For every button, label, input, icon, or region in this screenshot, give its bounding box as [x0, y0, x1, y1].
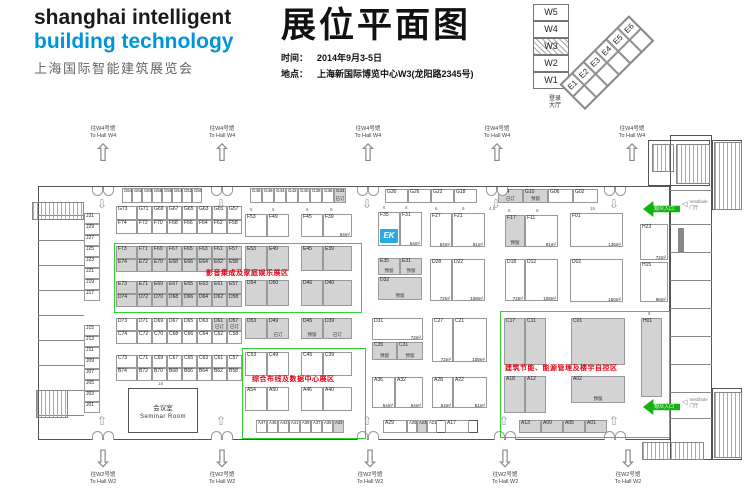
booth-C57: C57	[227, 355, 242, 368]
booth-D50: D50	[267, 280, 289, 306]
booth-C74: C74	[116, 331, 137, 344]
booth-G02: G02	[573, 189, 598, 203]
booth-id: E61	[214, 281, 223, 287]
booth-A32: A3254m²	[395, 377, 423, 408]
down-arrow-icon: ⇩	[216, 197, 226, 211]
booth-A37: A37	[311, 420, 322, 433]
booth-C39: C39	[323, 352, 352, 376]
booth-G65: G65	[182, 206, 197, 220]
booth-id: G34	[336, 188, 345, 193]
wall-line	[670, 418, 712, 419]
booth-id: E74	[118, 259, 127, 265]
booth-C63: C63	[197, 355, 212, 368]
booth-C21: C21108m²	[453, 318, 487, 362]
booth-area: 72m²	[411, 335, 421, 340]
booth-id: H01	[643, 318, 652, 324]
hall-direction-top: 往W4号馆To Hall W4⇧	[467, 126, 527, 166]
booth-id: C58	[229, 331, 238, 337]
booth-area: 160m²	[608, 297, 621, 302]
booth-G50: G50	[192, 188, 202, 203]
door-arc	[211, 431, 222, 440]
booth-id: A29	[385, 420, 394, 426]
booth-F74: F74	[116, 220, 137, 234]
booth-id: J15	[86, 325, 94, 331]
booth-D71: D71	[137, 318, 152, 331]
booth-C45: C45	[301, 352, 323, 376]
booth-F71: F71	[137, 246, 152, 259]
booth-D32: D32预留	[378, 277, 422, 300]
booth-A28: A2854m²	[432, 377, 453, 408]
booth-id: G57	[229, 206, 238, 212]
booth-F01: F01135m²	[570, 213, 623, 247]
booth-id: G62	[134, 188, 142, 193]
booth-B74: B74	[116, 368, 137, 381]
wall-line	[670, 336, 712, 337]
booth-D73: D73	[116, 318, 137, 331]
booth-area: 54m²	[441, 403, 451, 408]
wall-line	[670, 280, 712, 281]
booth-area: 108m²	[470, 296, 483, 301]
booth-E35: E35预留	[378, 258, 400, 275]
direction-cn: 往W2号馆	[598, 472, 658, 479]
down-arrow-icon: ⇩	[598, 446, 658, 472]
booth-F35: F35EK	[378, 212, 400, 246]
booth-id: C21	[455, 318, 464, 324]
booth-id: C31	[399, 342, 408, 348]
booth-id: F69	[154, 246, 163, 252]
booth-id: A47	[258, 420, 265, 425]
vestibule-label: ◁Vestibule门厅	[682, 397, 718, 408]
dimension-label: 8	[648, 311, 651, 316]
booth-id: G64	[124, 188, 132, 193]
booth-id: A54	[247, 387, 256, 393]
hall-direction-bottom: ⇩往W2号馆To Hall W2	[475, 446, 535, 486]
booth-id: G02	[575, 189, 584, 195]
booth-id: A46	[303, 387, 312, 393]
direction-en: To Hall W2	[475, 479, 535, 486]
booth-F17: F17预留	[505, 215, 525, 247]
booth-id: F21	[454, 213, 463, 219]
booth-C61: C61	[212, 355, 227, 368]
booth-status: 预留	[373, 353, 396, 359]
booth-id: E35	[380, 258, 389, 264]
booth-B64: B64	[197, 368, 212, 381]
booth-area: 81m²	[546, 242, 556, 247]
hall-direction-bottom: ⇩往W2号馆To Hall W2	[192, 446, 252, 486]
booth-F72: F72	[137, 220, 152, 234]
booth-status: 已订	[268, 332, 288, 338]
booth-E65: E65	[182, 281, 197, 294]
booth-id: F49	[269, 214, 278, 220]
direction-cn: 往W4号馆	[73, 126, 133, 133]
vestibule-text: Vestibule门厅	[689, 397, 707, 408]
dimension-label: 6	[508, 208, 511, 213]
booth-id: E57	[229, 281, 238, 287]
hall-direction-top: 往W4号馆To Hall W4⇧	[338, 126, 398, 166]
booth-area: 96m²	[656, 297, 666, 302]
booth-A22: A2281m²	[453, 377, 487, 408]
booth-J15: J15	[84, 325, 100, 336]
booth-id: F27	[432, 213, 441, 219]
booth-id: B62	[214, 368, 223, 374]
booth-id: A25	[409, 420, 416, 425]
booth-id: J07	[86, 369, 94, 375]
booth-G64: G64	[122, 188, 132, 203]
booth-G44: G44	[274, 188, 286, 203]
wall-line	[38, 340, 84, 341]
booth-id: A17	[447, 420, 456, 426]
booth-id: A36	[374, 377, 383, 383]
booth-id: C73	[118, 355, 127, 361]
hall-direction-top: 往W4号馆To Hall W4⇧	[602, 126, 662, 166]
booth-id: D39	[325, 318, 334, 324]
down-arrow-icon: ⇩	[73, 446, 133, 472]
booth-G38: G38	[310, 188, 322, 203]
booth-D64: D64	[197, 294, 212, 307]
booth-C71: C71	[137, 355, 152, 368]
exhibitor-logo: EK	[380, 229, 398, 243]
booth-D74: D74	[116, 294, 137, 307]
booth-id: J31	[86, 213, 94, 219]
booth-id: G06	[550, 189, 559, 195]
vestibule-label: ◁Vestibule门厅	[682, 199, 718, 210]
booth-A09: A09	[541, 420, 563, 433]
booth-id: F68	[169, 220, 178, 226]
hatched-area	[714, 142, 742, 210]
booth-F73: F73	[116, 246, 137, 259]
booth-B58: B58	[227, 368, 242, 381]
booth-id: J03	[86, 391, 94, 397]
booth-D39: D39已订	[323, 318, 352, 339]
booth-id: C57	[229, 355, 238, 361]
booth-status: 已订	[335, 196, 345, 202]
booth-id: F74	[118, 220, 127, 226]
booth-id: G44	[276, 188, 285, 193]
booth-J17: J17	[84, 290, 100, 301]
booth-A01: A01	[585, 420, 607, 433]
booth-id: J17	[86, 290, 94, 296]
booth-id: G10	[525, 189, 534, 195]
booth-id: G69	[154, 206, 163, 212]
dimension-label: 6	[272, 207, 275, 212]
booth-id: B64	[199, 368, 208, 374]
booth-F27: F2754m²	[430, 213, 452, 247]
booth-A36: A3654m²	[372, 377, 395, 408]
wall-line	[670, 364, 712, 365]
booth-A39: A39	[300, 420, 311, 433]
booth-id: F58	[229, 220, 238, 226]
entrance-label: 观众入口	[654, 404, 674, 410]
booth-id: F57	[229, 246, 238, 252]
booth-id: A13	[521, 420, 530, 426]
booth-id: F71	[139, 246, 148, 252]
booth-G71: G71	[137, 206, 152, 220]
left-triangle-icon: ◁	[682, 398, 687, 406]
booth-id: E71	[139, 281, 148, 287]
up-arrow-icon: ⇧	[467, 140, 527, 166]
booth-F69: F69	[152, 246, 167, 259]
booth-id: A32	[397, 377, 406, 383]
booth-status: 预留	[398, 353, 422, 359]
booth-id: G38	[312, 188, 321, 193]
booth-J19: J19	[84, 279, 100, 290]
booth-F61: F61	[212, 246, 227, 259]
page: shanghai intelligent building technology…	[0, 0, 746, 496]
booth-id: D62	[214, 294, 223, 300]
booth-status: 预留	[524, 196, 547, 202]
booth-id: G73	[118, 206, 127, 212]
booth-C01: C01	[571, 318, 625, 365]
dimension-label: 9	[330, 207, 333, 212]
booth-F70: F70	[152, 220, 167, 234]
hall-direction-top: 往W4号馆To Hall W4⇧	[192, 126, 252, 166]
booth-id: E31	[402, 258, 411, 264]
booth-C17: C17	[504, 318, 525, 365]
booth-status: 已订	[213, 324, 226, 330]
booth-id: J25	[86, 246, 94, 252]
wall-line	[38, 315, 84, 316]
booth-G30: G30	[385, 189, 408, 203]
booth-F66: F66	[182, 220, 197, 234]
booth-G06: G06	[548, 189, 573, 203]
booth-id: E73	[118, 281, 127, 287]
booth-id: G54	[174, 188, 182, 193]
booth-id: A28	[434, 377, 443, 383]
left-triangle-icon: ◁	[682, 200, 687, 208]
booth-E31: E31预留	[400, 258, 422, 275]
booth-id: F45	[303, 214, 312, 220]
booth-id: E64	[199, 259, 208, 265]
booth-status: 预留	[379, 268, 399, 274]
booth-area: 72m²	[441, 357, 451, 362]
booth-id: G52	[184, 188, 192, 193]
up-arrow-icon: ⇧	[499, 414, 509, 428]
door-arc	[222, 431, 233, 440]
hatched-area	[676, 144, 710, 184]
booth-E57: E57	[227, 281, 242, 294]
booth-id: E63	[199, 281, 208, 287]
booth-E72: E72	[137, 259, 152, 272]
booth-id: F61	[214, 246, 223, 252]
booth-id: G30	[387, 189, 396, 195]
booth-id: G56	[164, 188, 172, 193]
booth-id: C63	[199, 355, 208, 361]
booth-J27: J27	[84, 235, 100, 246]
booth-id: G71	[139, 206, 148, 212]
wall-line	[38, 240, 84, 241]
booth-D22: D22108m²	[452, 259, 485, 301]
booth-G42: G42	[286, 188, 298, 203]
booth-E69: E69	[152, 281, 167, 294]
booth-F49: F49	[267, 214, 289, 237]
booth-A33: A33	[333, 420, 344, 433]
zone-label-1: 综合布线及数据中心展区	[252, 374, 335, 384]
booth-id: F62	[214, 220, 223, 226]
door-arc	[368, 431, 379, 440]
booth-E39: E39	[323, 246, 352, 271]
hatched-area	[32, 202, 84, 220]
booth-A02: A02预留	[571, 376, 625, 403]
down-arrow-icon: ⇩	[340, 446, 400, 472]
booth-J09: J09	[84, 358, 100, 369]
booth-id: A22	[455, 377, 464, 383]
booth-D65: D65	[182, 318, 197, 331]
booth-F62: F62	[212, 220, 227, 234]
booth-status: 预留	[379, 293, 421, 299]
booth-status: 已订	[228, 324, 241, 330]
booth-area: 72m²	[513, 296, 523, 301]
booth-C72: C72	[137, 331, 152, 344]
booth-A18: A18	[504, 376, 525, 413]
booth-A13: A13	[519, 420, 541, 433]
zone-label-2: 建筑节能、能源管理及楼宇自控区	[505, 363, 618, 373]
booth-id: D65	[184, 318, 193, 324]
booth-area: 54m²	[410, 241, 420, 246]
booth-id: F01	[572, 213, 581, 219]
booth-D62: D62	[212, 294, 227, 307]
booth-G18: G18	[454, 189, 477, 203]
wall-line	[670, 308, 712, 309]
booth-id: D02	[572, 259, 581, 265]
wall-line	[38, 265, 84, 266]
booth-D28: D2872m²	[430, 259, 452, 301]
booth-J11: J11	[84, 347, 100, 358]
booth-G22: G22	[431, 189, 454, 203]
booth-id: A01	[587, 420, 596, 426]
booth-G56: G56	[162, 188, 172, 203]
booth-C53: C53	[245, 352, 267, 376]
booth-B66: B66	[182, 368, 197, 381]
booth-id: J23	[86, 257, 94, 263]
booth-F45: F45	[301, 214, 323, 237]
booth-F64: F64	[197, 220, 212, 234]
booth-C70: C70	[152, 331, 167, 344]
booth-id: D72	[139, 294, 148, 300]
booth-area: 108m²	[543, 296, 556, 301]
up-arrow-icon: ⇧	[602, 140, 662, 166]
booth-D58: D58	[227, 294, 242, 307]
booth-id: D67	[169, 318, 178, 324]
booth-id: J13	[86, 336, 94, 342]
booth-id: D46	[303, 280, 312, 286]
booth-id: E39	[325, 246, 334, 252]
booth-id: J09	[86, 358, 94, 364]
door-arc	[604, 431, 615, 440]
booth-id: J01	[86, 402, 94, 408]
dimension-label: 6	[250, 207, 253, 212]
booth-J31: J31	[84, 213, 100, 224]
booth-A25: A25	[407, 420, 417, 433]
booth-F68: F68	[167, 220, 182, 234]
booth-id: A50	[269, 387, 278, 393]
booth-id: D54	[247, 280, 256, 286]
booth-id: C35	[374, 342, 383, 348]
booth-B62: B62	[212, 368, 227, 381]
booth-id: G46	[264, 188, 273, 193]
booth-id: A12	[527, 376, 536, 382]
booth-G60: G60	[142, 188, 152, 203]
booth-id: D32	[380, 277, 389, 283]
booth-id: D71	[139, 318, 148, 324]
direction-en: To Hall W2	[192, 479, 252, 486]
booth-A45: A45	[267, 420, 278, 433]
booth-E45: E45	[301, 246, 323, 271]
wall-line	[38, 365, 84, 366]
booth-A54: A54	[245, 387, 267, 411]
booth-id: F67	[169, 246, 178, 252]
wall-line	[38, 290, 84, 291]
booth-id: E65	[184, 281, 193, 287]
booth-id: F53	[247, 214, 256, 220]
booth-id: C67	[169, 355, 178, 361]
direction-cn: 往W4号馆	[192, 126, 252, 133]
booth-D40: D40	[323, 280, 352, 306]
booth-id: F66	[184, 220, 193, 226]
booth-id: C53	[247, 352, 256, 358]
direction-cn: 往W4号馆	[467, 126, 527, 133]
booth-id: A37	[313, 420, 320, 425]
booth-G26: G26	[408, 189, 431, 203]
booth-E67: E67	[167, 281, 182, 294]
booth-B70: B70	[152, 368, 167, 381]
booth-id: A45	[269, 420, 276, 425]
direction-cn: 往W2号馆	[340, 472, 400, 479]
booth-A41: A41	[289, 420, 300, 433]
booth-id: F17	[507, 215, 516, 221]
booth-id: D69	[154, 318, 163, 324]
booth-status: 已订	[499, 196, 522, 202]
booth-id: G50	[194, 188, 202, 193]
booth-id: H23	[642, 224, 651, 230]
booth-F65: F65	[182, 246, 197, 259]
down-arrow-icon: ⇩	[97, 197, 107, 211]
booth-G52: G52	[182, 188, 192, 203]
booth-status: 预留	[401, 268, 421, 274]
booth-id: E45	[303, 246, 312, 252]
booth-id: E58	[229, 259, 238, 265]
booth-id: E49	[269, 246, 278, 252]
booth-id: C39	[325, 352, 334, 358]
booth-J13: J13	[84, 336, 100, 347]
booth-C35: C35预留	[372, 342, 397, 360]
wall-line	[670, 252, 712, 253]
booth-D57: D57已订	[227, 318, 242, 331]
booth-D61: D61已订	[212, 318, 227, 331]
up-arrow-icon: ⇧	[216, 414, 226, 428]
booth-id: E67	[169, 281, 178, 287]
booth-id: F35	[380, 212, 389, 218]
booth-id: D53	[247, 318, 256, 324]
vestibule-text: Vestibule门厅	[689, 199, 707, 210]
booth-id: E72	[139, 259, 148, 265]
booth-id: C65	[184, 355, 193, 361]
up-arrow-icon: ⇧	[338, 140, 398, 166]
booth-status: 预留	[572, 396, 624, 402]
booth-status: 预留	[506, 240, 524, 246]
booth-G63: G63	[197, 206, 212, 220]
booth-id: J29	[86, 224, 94, 230]
booth-id: D66	[184, 294, 193, 300]
booth-G48: G48	[250, 188, 262, 203]
booth-J21: J21	[84, 268, 100, 279]
booth-id: A09	[543, 420, 552, 426]
booth-id: B72	[139, 368, 148, 374]
booth-D68: D68	[167, 294, 182, 307]
booth-G10: G10预留	[523, 189, 548, 203]
booth-J01: J01	[84, 402, 100, 413]
booth-id: C64	[199, 331, 208, 337]
booth-id: B74	[118, 368, 127, 374]
